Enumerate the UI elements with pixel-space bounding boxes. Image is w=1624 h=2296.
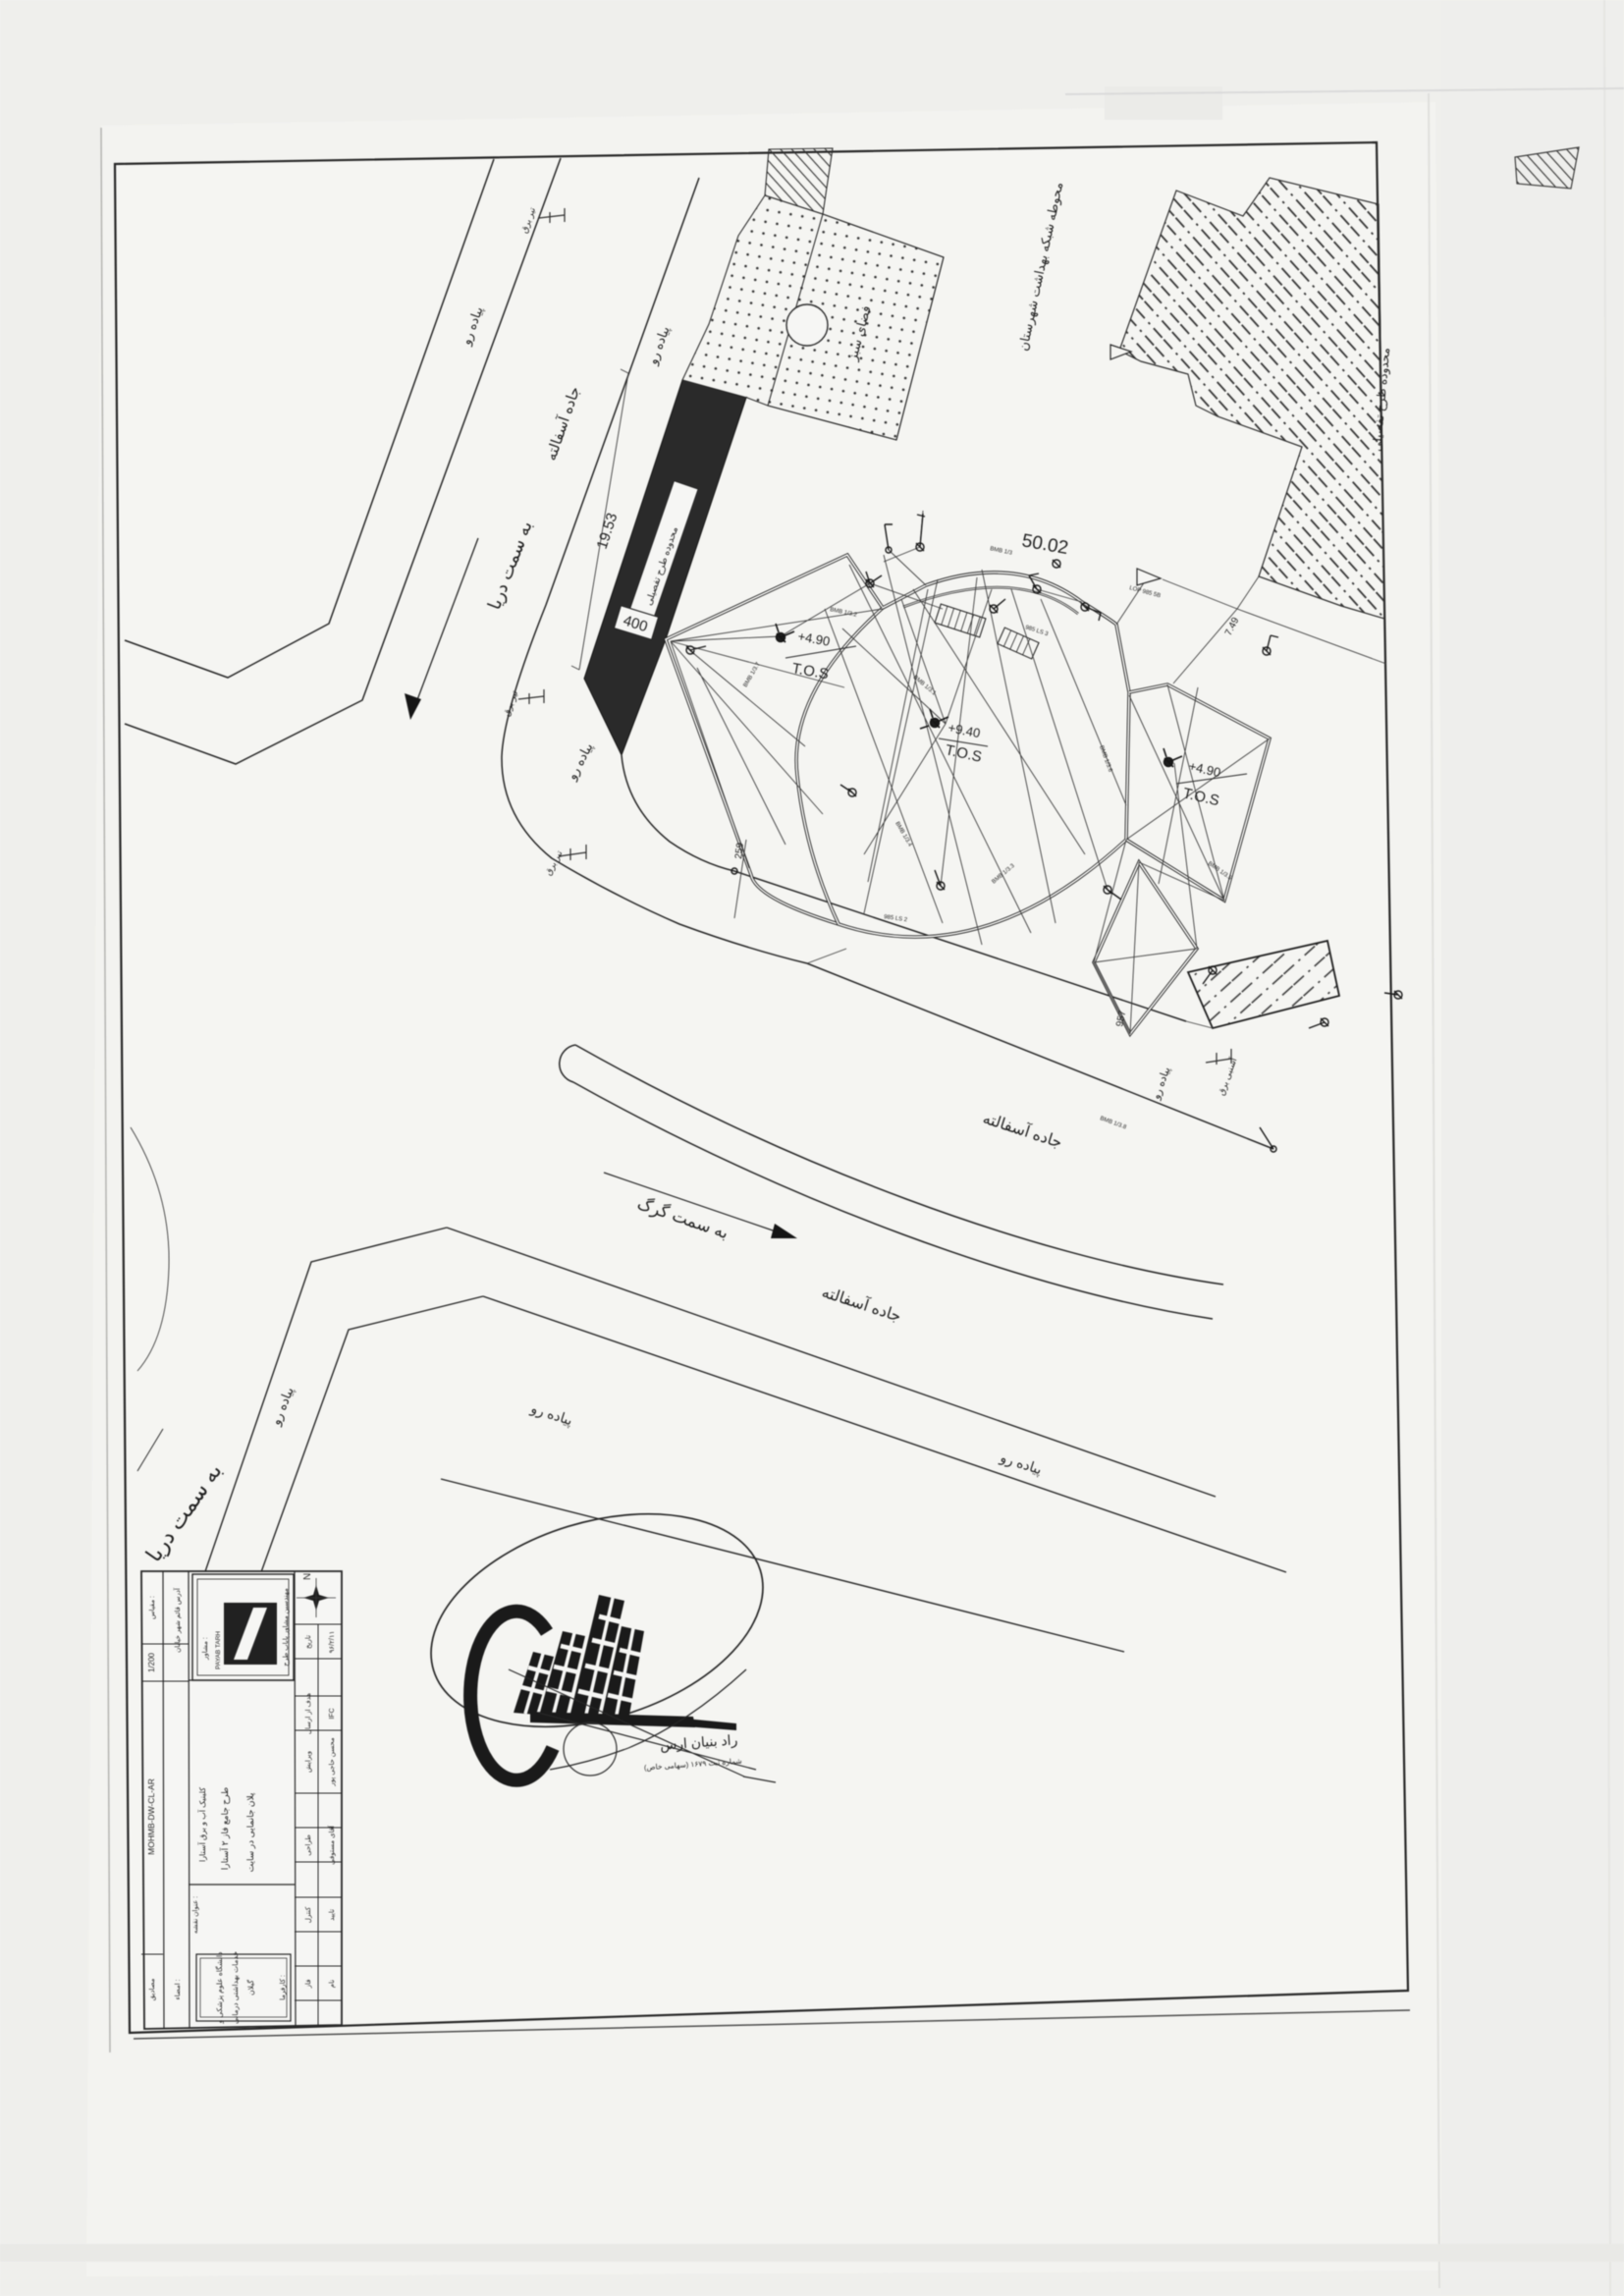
svg-text:۹۶/۲/۱۱: ۹۶/۲/۱۱ xyxy=(329,1631,336,1654)
svg-text:مشاور :: مشاور : xyxy=(201,1637,209,1661)
svg-text:دانشگاه علوم پزشکی و: دانشگاه علوم پزشکی و xyxy=(214,1951,224,2024)
svg-text:259: 259 xyxy=(733,842,746,859)
svg-text:کلینیک آب و برق آستارا: کلینیک آب و برق آستارا xyxy=(197,1787,207,1862)
svg-text:نام: نام xyxy=(328,1980,336,1988)
svg-text:طرح جامع فاز ۲ آستارا: طرح جامع فاز ۲ آستارا xyxy=(219,1787,231,1870)
svg-text:هدف از ارسال: هدف از ارسال xyxy=(304,1693,312,1735)
svg-text:تاریخ: تاریخ xyxy=(304,1635,312,1649)
svg-text:امضاء :: امضاء : xyxy=(174,1979,182,1999)
svg-text:فاز: فاز xyxy=(304,1980,312,1990)
svg-text:محسن حاجی پور: محسن حاجی پور xyxy=(328,1737,336,1787)
svg-text:پلان جانمایی در سایت: پلان جانمایی در سایت xyxy=(245,1792,256,1872)
svg-text:N: N xyxy=(302,1573,313,1580)
svg-text:IFC: IFC xyxy=(329,1708,336,1719)
svg-text:کنترل: کنترل xyxy=(304,1906,312,1923)
svg-text:PAYAB TARH: PAYAB TARH xyxy=(215,1631,222,1669)
svg-text:تایید: تایید xyxy=(328,1909,336,1921)
svg-text:خدمات بهداشتی درمانی: خدمات بهداشتی درمانی xyxy=(231,1951,240,2024)
svg-text:گیلان: گیلان xyxy=(245,1980,255,1995)
svg-text:کارفرما :: کارفرما : xyxy=(279,1975,287,2000)
svg-text:MOHMB-DW-CL-AR: MOHMB-DW-CL-AR xyxy=(146,1778,156,1855)
svg-text:مقیاس :: مقیاس : xyxy=(148,1596,156,1619)
svg-text:طراحی: طراحی xyxy=(304,1834,312,1856)
svg-text:مهندسین مشاور پایاب طرح: مهندسین مشاور پایاب طرح xyxy=(282,1588,290,1667)
svg-text:ویرایش: ویرایش xyxy=(304,1751,312,1773)
svg-text:مصادیق: مصادیق xyxy=(148,1978,156,2000)
svg-text:عنوان نقشه :: عنوان نقشه : xyxy=(191,1896,199,1934)
svg-text:1/200: 1/200 xyxy=(147,1652,156,1672)
